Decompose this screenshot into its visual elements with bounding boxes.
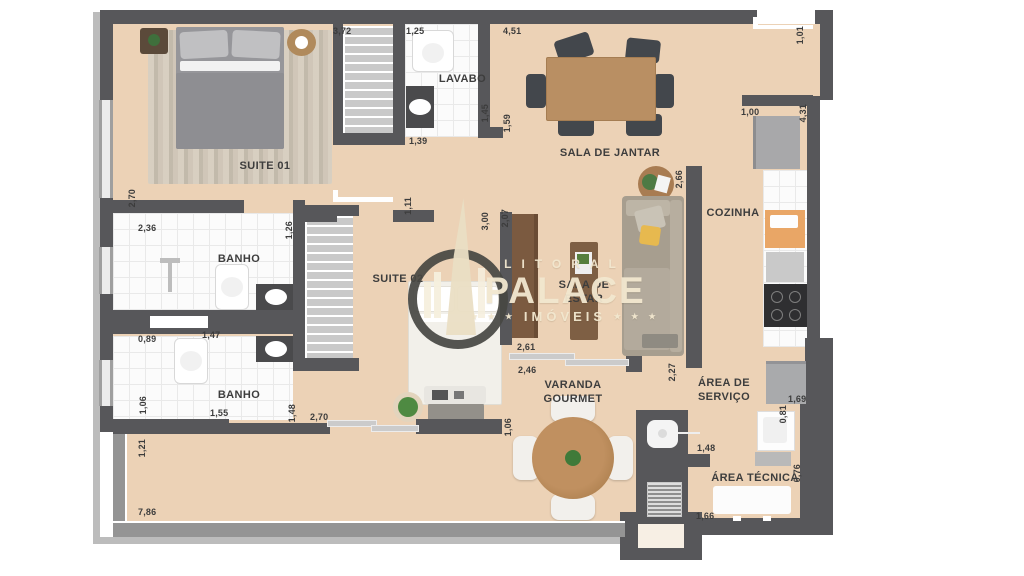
room-label-suite02: SUITE 02 xyxy=(358,272,438,286)
dim-label: 1,25 xyxy=(406,27,424,36)
service-shelf xyxy=(755,452,791,466)
wall xyxy=(333,24,343,145)
sofa-backrest xyxy=(670,200,682,352)
dim-label: 1,59 xyxy=(503,114,512,132)
wall-suite02-bottom xyxy=(229,423,330,434)
sink-basin xyxy=(265,341,287,357)
faucet-line xyxy=(678,432,700,434)
dim-label: 1,66 xyxy=(696,512,714,521)
banho2-toilet xyxy=(174,338,208,384)
magazine xyxy=(577,254,589,264)
pillow xyxy=(413,286,455,312)
wall-stub xyxy=(626,356,642,372)
balcony-railing xyxy=(113,433,127,521)
magazine xyxy=(654,175,671,194)
wall xyxy=(478,127,503,138)
lamp xyxy=(295,36,308,49)
suite02-closet xyxy=(305,216,353,358)
sofa-pillow-yellow xyxy=(639,225,661,247)
window xyxy=(99,100,113,198)
kitchen-sink-unit xyxy=(765,210,805,248)
plant xyxy=(148,34,160,46)
toilet-bowl xyxy=(422,43,444,63)
bed-duvet xyxy=(176,73,284,149)
wall-suite02-bottom xyxy=(416,419,502,434)
wall xyxy=(333,133,405,145)
toilet-bowl xyxy=(221,277,243,297)
dim-label: 0,81 xyxy=(779,405,788,423)
banho2-vanity xyxy=(256,336,296,362)
suite01-nightstand-left xyxy=(140,28,168,54)
wall xyxy=(393,24,405,145)
lavabo-vanity xyxy=(406,86,434,128)
dim-label: 2,70 xyxy=(310,413,328,422)
dim-label: 2,61 xyxy=(517,343,535,352)
wall-banho-right xyxy=(293,200,305,368)
dim-label: 1,06 xyxy=(504,418,513,436)
dim-label: 2,07 xyxy=(501,209,510,227)
dim-label: 1,11 xyxy=(404,197,413,215)
shower-column xyxy=(168,262,172,292)
sofa xyxy=(622,196,684,356)
dim-label: 3,72 xyxy=(333,27,351,36)
wall-closet-bottom xyxy=(293,358,359,371)
dim-label: 2,46 xyxy=(518,366,536,375)
suite02-varanda-slider xyxy=(328,421,376,426)
suite01-door-leaf xyxy=(337,197,393,202)
suite01-door-hinge xyxy=(333,190,338,202)
living-varanda-slider xyxy=(510,354,574,359)
room-label-area-servico: ÁREA DE SERVIÇO xyxy=(693,376,755,405)
entry-door-hinge xyxy=(753,17,758,29)
plant-centerpiece xyxy=(565,450,581,466)
wall-top xyxy=(100,10,757,24)
laundry-tank xyxy=(757,411,795,451)
dim-label: 1,21 xyxy=(138,439,147,457)
dim-label: 1,01 xyxy=(796,26,805,44)
wall-closet-top xyxy=(293,205,359,216)
dim-label: 1,48 xyxy=(697,444,715,453)
sink-basin xyxy=(770,215,798,228)
round-table xyxy=(532,417,614,499)
room-label-banho2: BANHO xyxy=(199,388,279,402)
room-label-suite01: SUITE 01 xyxy=(215,159,315,173)
sink-drain xyxy=(658,429,667,438)
window xyxy=(99,247,113,294)
wall-right xyxy=(807,96,820,345)
plant xyxy=(398,397,418,417)
dim-label: 0,89 xyxy=(138,335,156,344)
equipment-foot xyxy=(733,516,741,521)
burner xyxy=(771,309,783,321)
sink-basin xyxy=(409,99,431,115)
bed-sheet-fold xyxy=(413,314,497,322)
dim-label: 1,39 xyxy=(409,137,427,146)
wall-right xyxy=(800,400,833,533)
toilet-bowl xyxy=(180,351,202,371)
wall-banho2-bottom xyxy=(113,419,229,434)
lavabo-toilet xyxy=(412,30,454,72)
banho1-toilet xyxy=(215,264,249,310)
dishwasher xyxy=(766,252,804,282)
burner xyxy=(789,309,801,321)
sofa-throw xyxy=(642,334,678,348)
bed-sheet-fold xyxy=(180,61,280,71)
shower-head xyxy=(160,258,180,263)
room-label-banho1: BANHO xyxy=(199,252,279,266)
dim-label: 1,45 xyxy=(481,104,490,122)
room-label-cozinha: COZINHA xyxy=(698,206,768,220)
dim-label: 7,86 xyxy=(138,508,156,517)
grill xyxy=(647,482,682,517)
cooktop xyxy=(764,284,807,327)
tv-panel xyxy=(512,214,538,338)
wall-right xyxy=(820,10,833,100)
dim-label: 4,51 xyxy=(503,27,521,36)
suite01-nightstand-right xyxy=(287,29,316,56)
dim-label: 1,48 xyxy=(288,404,297,422)
suite01-bed xyxy=(176,27,284,149)
burner xyxy=(789,291,801,303)
dim-label: 1,26 xyxy=(285,221,294,239)
dim-label: 1,06 xyxy=(139,396,148,414)
dim-label: 2,66 xyxy=(675,170,684,188)
dim-label: 1,69 xyxy=(788,395,806,404)
room-label-sala-estar: SALA DE ESTAR xyxy=(551,278,617,307)
dim-label: 1,55 xyxy=(210,409,228,418)
floor-plan: SUITE 01 LAVABO SALA DE JANTAR BANHO SUI… xyxy=(0,0,1024,576)
laptop xyxy=(432,390,448,400)
dim-label: 1,47 xyxy=(202,331,220,340)
dining-table xyxy=(546,57,656,121)
pillow xyxy=(179,30,228,59)
dim-label: 3,00 xyxy=(481,212,490,230)
dim-label: 2,36 xyxy=(138,224,156,233)
balcony-railing xyxy=(113,521,625,537)
sink-basin xyxy=(265,289,287,305)
wall-kitchen-divider xyxy=(686,166,702,368)
wall-hall xyxy=(393,210,434,222)
pillow xyxy=(457,286,499,312)
wall-tecnica-stub xyxy=(686,454,710,467)
plan-shadow-bottom xyxy=(93,537,635,544)
burner xyxy=(771,291,783,303)
suite02-bench xyxy=(424,386,486,404)
dining-chair xyxy=(526,74,546,108)
suite02-varanda-slider xyxy=(372,426,418,431)
living-varanda-slider xyxy=(566,360,628,365)
dim-label: 1,00 xyxy=(741,108,759,117)
window xyxy=(99,360,113,406)
dim-label: 2,27 xyxy=(668,363,677,381)
decor-item xyxy=(454,391,464,399)
equipment-foot xyxy=(763,516,771,521)
banho1-vanity xyxy=(256,284,296,310)
pillow xyxy=(231,30,280,59)
room-label-sala-jantar: SALA DE JANTAR xyxy=(540,146,680,160)
dim-label: 4,31 xyxy=(799,104,808,122)
dining-chair xyxy=(654,74,674,108)
wall-niche xyxy=(150,316,208,328)
dim-label: 2,70 xyxy=(128,189,137,207)
floor-plant xyxy=(393,392,423,422)
wall-suite02-right xyxy=(500,212,512,345)
grill-sink xyxy=(647,420,678,448)
room-label-lavabo: LAVABO xyxy=(425,72,500,86)
fridge xyxy=(753,116,800,169)
suite01-closet xyxy=(343,26,393,135)
shaft-void xyxy=(638,524,684,548)
ac-condenser xyxy=(713,486,791,514)
dim-label: 0,76 xyxy=(793,464,802,482)
wall-right xyxy=(805,338,833,403)
room-label-varanda: VARANDA GOURMET xyxy=(533,378,613,407)
